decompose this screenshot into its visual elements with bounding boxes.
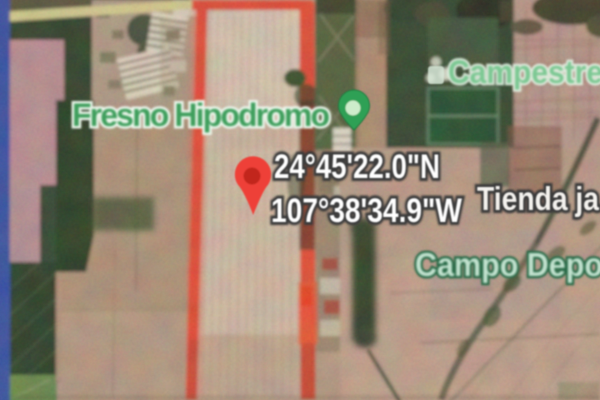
svg-text:Tienda ja: Tienda ja xyxy=(477,180,600,217)
svg-text:Fresno Hipodromo: Fresno Hipodromo xyxy=(72,97,330,133)
svg-text:Campo Depo: Campo Depo xyxy=(415,246,600,283)
svg-text:24°45'22.0"N: 24°45'22.0"N xyxy=(274,148,440,186)
svg-text:107°38'34.9"W: 107°38'34.9"W xyxy=(271,192,463,230)
svg-text:Campestre: Campestre xyxy=(448,54,600,90)
